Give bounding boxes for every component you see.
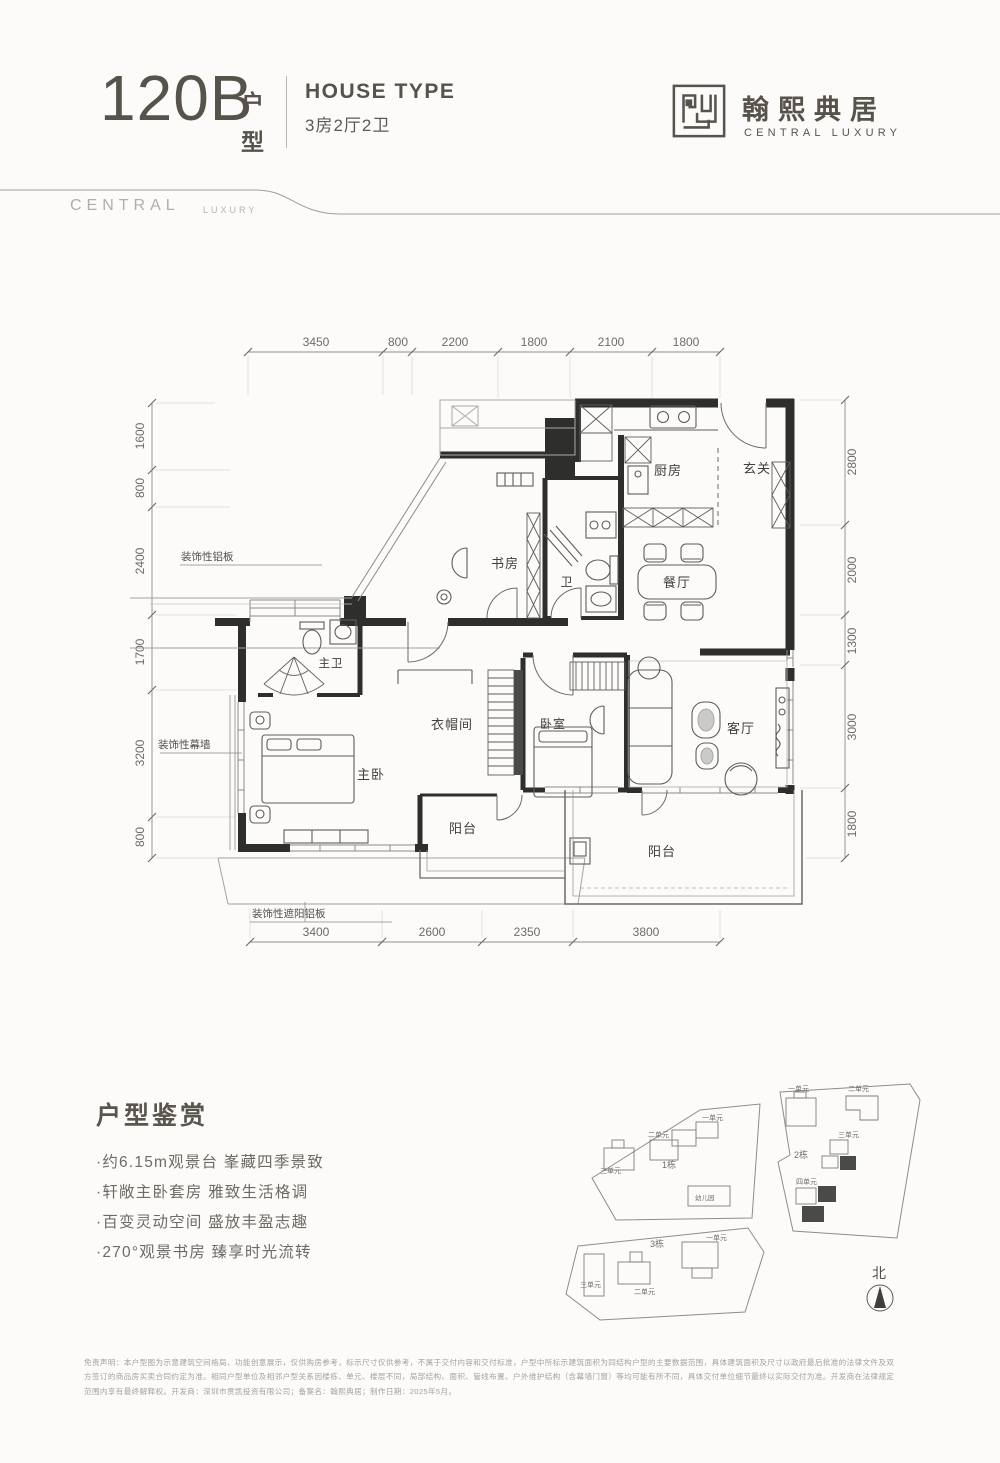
- room-label-foyer: 玄关: [743, 461, 771, 476]
- room-label-study: 书房: [491, 556, 519, 571]
- room-label-bath: 卫: [560, 575, 573, 589]
- room-label-cloakroom: 衣帽间: [431, 717, 473, 732]
- dim-top-5: 1800: [673, 335, 700, 349]
- dim-top-4: 2100: [598, 335, 625, 349]
- room-label-master-bedroom: 主卧: [357, 767, 385, 782]
- site-building-1: 1栋: [662, 1159, 676, 1170]
- dim-right-1: 2000: [845, 556, 859, 583]
- dim-left-2: 2400: [133, 547, 147, 574]
- dimension-chains: [148, 348, 849, 946]
- room-label-living: 客厅: [727, 721, 755, 736]
- dim-bottom-2: 2350: [514, 925, 541, 939]
- highlight-item: ·约6.15m观景台 峯藏四季景致: [96, 1148, 324, 1178]
- disclaimer: 免责声明：本户型图为示意建筑空间格局、功能创意展示，仅供购房参考，标示尺寸仅供参…: [84, 1356, 924, 1399]
- room-label-balcony-small: 阳台: [449, 821, 477, 836]
- site-unit-label: 二单元: [648, 1130, 669, 1139]
- dim-bottom-0: 3400: [303, 925, 330, 939]
- floorplan-drawing: 3450 800 2200 1800 2100 1800 1600 800 24…: [130, 330, 900, 975]
- dim-ticks: [148, 348, 849, 946]
- dim-left-3: 1700: [133, 638, 147, 665]
- room-label-master-bath: 主卫: [319, 657, 344, 670]
- site-building-2: 2栋: [794, 1149, 808, 1160]
- dim-top-1: 800: [388, 335, 408, 349]
- site-unit-label: 二单元: [634, 1287, 655, 1296]
- north-label: 北: [872, 1265, 886, 1281]
- highlights-list: ·约6.15m观景台 峯藏四季景致 ·轩敞主卧套房 雅致生活格调 ·百变灵动空间…: [96, 1148, 324, 1268]
- room-label-balcony-large: 阳台: [648, 844, 676, 859]
- highlights-title: 户型鉴赏: [96, 1096, 208, 1132]
- dim-right-4: 1800: [845, 810, 859, 837]
- dim-top-2: 2200: [442, 335, 469, 349]
- dim-top-3: 1800: [521, 335, 548, 349]
- annotation-curtain-wall: 装饰性幕墙: [158, 738, 211, 751]
- north-arrow-icon: [874, 1286, 886, 1308]
- balconies-layer: [420, 790, 802, 904]
- dim-right-0: 2800: [845, 448, 859, 475]
- watermark-central: CENTRAL: [70, 197, 180, 215]
- site-unit-label: 三单元: [580, 1280, 601, 1289]
- site-building-3: 3栋: [650, 1238, 664, 1249]
- highlight-item: ·轩敞主卧套房 雅致生活格调: [96, 1178, 324, 1208]
- room-label-kitchen: 厨房: [654, 463, 682, 478]
- site-unit-label: 三单元: [600, 1166, 621, 1175]
- dim-left-4: 3200: [133, 739, 147, 766]
- site-unit-label: 一单元: [706, 1233, 727, 1242]
- highlight-item: ·270°观景书房 臻享时光流转: [96, 1238, 324, 1268]
- siteplan-map: 三单元 二单元 一单元 1栋 幼儿园 一单元 二单元 2栋 三单元 四单元 3栋…: [555, 1075, 985, 1325]
- floorplan-page: { "header": { "unit_code": "120B", "unit…: [0, 0, 1000, 1463]
- dim-top-0: 3450: [303, 335, 330, 349]
- watermark-luxury: LUXURY: [203, 205, 257, 215]
- site-unit-label: 一单元: [788, 1084, 809, 1093]
- walls-layer: [215, 399, 794, 852]
- highlight-item: ·百变灵动空间 盛放丰盈志趣: [96, 1208, 324, 1238]
- dim-right-3: 3000: [845, 713, 859, 740]
- dim-right-2: 1300: [845, 627, 859, 654]
- room-label-bedroom: 卧室: [540, 716, 566, 731]
- dim-left-1: 800: [133, 478, 147, 498]
- dim-bottom-3: 3800: [633, 925, 660, 939]
- site-unit-label: 三单元: [838, 1130, 859, 1139]
- dim-left-0: 1600: [133, 422, 147, 449]
- disclaimer-line-1: 免责声明：本户型图为示意建筑空间格局、功能创意展示，仅供购房参考，标示尺寸仅供参…: [84, 1356, 924, 1370]
- site-unit-label: 四单元: [796, 1177, 817, 1186]
- site-unit-label: 二单元: [848, 1084, 869, 1093]
- room-label-dining: 餐厅: [663, 575, 691, 590]
- site-kindergarten: 幼儿园: [695, 1193, 715, 1202]
- north-indicator: 北: [867, 1265, 893, 1311]
- disclaimer-line-3: 范围内享有最终解释权。开发商：深圳市贯凯投资有限公司；备案名：翰熙典居；制作日期…: [84, 1385, 924, 1399]
- annotation-alum-panel: 装饰性铝板: [181, 550, 234, 563]
- annotation-sunshade-panel: 装饰性遮阳铝板: [252, 907, 326, 920]
- furniture-layer: [250, 406, 789, 864]
- dim-bottom-1: 2600: [419, 925, 446, 939]
- disclaimer-line-2: 方签订的商品房买卖合同约定为准。相同户型单位及相邻户型关系因楼栋、单元、楼层不同…: [84, 1370, 924, 1384]
- site-unit-label: 一单元: [702, 1113, 723, 1122]
- dim-left-5: 800: [133, 827, 147, 847]
- siteplan-parcels: [566, 1084, 920, 1320]
- siteplan-buildings: [584, 1092, 878, 1296]
